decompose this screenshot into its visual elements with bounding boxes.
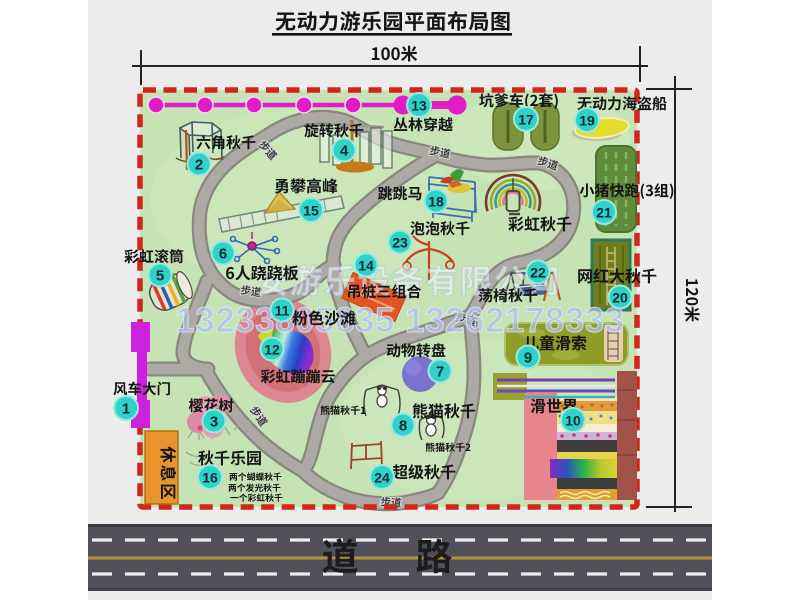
svg-text:7: 7 [436,364,444,381]
svg-text:21: 21 [596,205,612,221]
svg-text:13: 13 [411,98,427,114]
svg-text:15: 15 [303,203,319,219]
svg-text:22: 22 [530,265,546,281]
svg-text:23: 23 [392,235,408,251]
svg-text:6: 6 [219,246,227,263]
svg-text:3: 3 [210,414,218,431]
svg-text:8: 8 [399,418,407,435]
svg-text:14: 14 [358,258,374,274]
svg-text:20: 20 [612,290,628,306]
svg-text:10: 10 [565,413,581,429]
svg-text:1: 1 [122,401,130,418]
svg-text:12: 12 [264,342,280,358]
svg-text:11: 11 [275,303,290,319]
svg-text:9: 9 [524,350,532,367]
svg-text:16: 16 [202,470,218,486]
svg-text:24: 24 [374,470,390,486]
svg-text:18: 18 [428,194,444,210]
svg-text:17: 17 [518,112,534,128]
svg-text:4: 4 [340,143,349,160]
svg-text:5: 5 [156,268,164,285]
svg-text:19: 19 [579,113,595,129]
svg-text:2: 2 [195,157,203,174]
svg-text:13233805835 13262178333: 13233805835 13262178333 [175,301,624,340]
